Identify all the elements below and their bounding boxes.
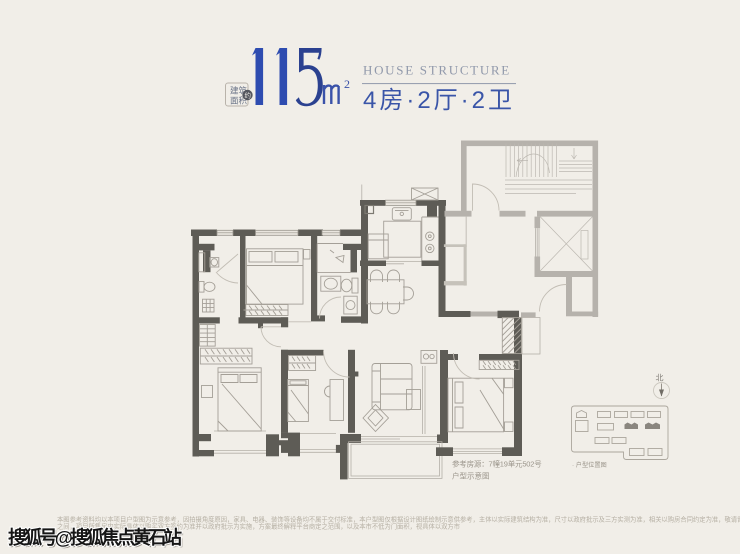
svg-text:4房·2厅·2卫: 4房·2厅·2卫 [363, 87, 515, 114]
svg-text:2: 2 [344, 77, 350, 91]
svg-text:参考房源：7幢19单元502号: 参考房源：7幢19单元502号 [452, 459, 542, 469]
svg-text:约: 约 [245, 91, 252, 100]
svg-text:搜狐号@搜狐焦点黄石站: 搜狐号@搜狐焦点黄石站 [8, 527, 183, 548]
svg-text:户型示意图: 户型示意图 [452, 471, 490, 481]
svg-text:北: 北 [656, 374, 664, 383]
svg-text:HOUSE STRUCTURE: HOUSE STRUCTURE [363, 63, 511, 78]
svg-text:· 户型位置图: · 户型位置图 [572, 461, 607, 469]
svg-text:本图参考资料均以本项目户型图为示意参考，因拍摄角度原因，家具: 本图参考资料均以本项目户型图为示意参考，因拍摄角度原因，家具、电器、装饰等设备均… [57, 515, 740, 524]
